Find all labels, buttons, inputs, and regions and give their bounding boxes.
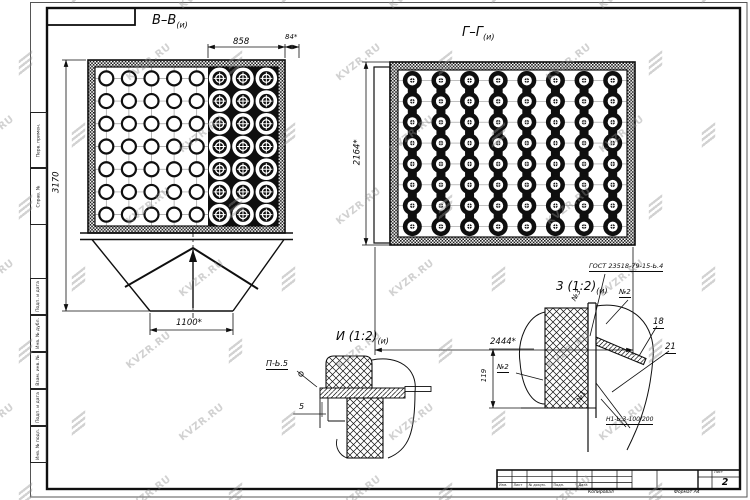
z-angled-plate [596,337,646,365]
side-box-label: Подп. и дата [36,281,41,312]
detail-i [293,356,431,458]
side-box-label: Инв. № дубл. [36,318,41,349]
side-box-label: Справ. № [36,186,41,208]
z-leaders [516,274,669,428]
drawing-canvas [0,0,750,500]
i-weld-leader [297,371,317,387]
i-thickness-dim [293,402,326,417]
side-box-label: Взам. инв. № [36,355,41,386]
side-box-inv-podl: Инв. № подл. [30,426,47,463]
side-box-sprav: Справ. № [30,168,47,225]
view-bb [62,44,299,335]
drawing-sheet: KVZR.RUKVZR.RUKVZR.RUKVZR.RUKVZR.RUKVZR.… [0,0,750,500]
side-box-label: Перв. примен. [36,123,41,157]
detail-z [489,274,669,452]
side-box-vzam-inv: Взам. инв. № [30,352,47,389]
top-left-stamp-box [47,8,135,25]
bb-hopper [80,228,293,318]
side-box-perv-primen: Перв. примен. [30,112,47,168]
side-box-podp-data-1: Подп. и дата [30,278,47,315]
title-block [497,470,740,489]
z-dim-119 [489,349,534,408]
gg-side-plate [374,67,390,243]
side-box-inv-dubl: Инв. № дубл. [30,315,47,352]
side-box-podp-data-2: Подп. и дата [30,389,47,426]
view-gg [362,62,635,355]
side-box-label: Подп. и дата [36,392,41,423]
side-box-label: Инв. № подл. [36,429,41,460]
